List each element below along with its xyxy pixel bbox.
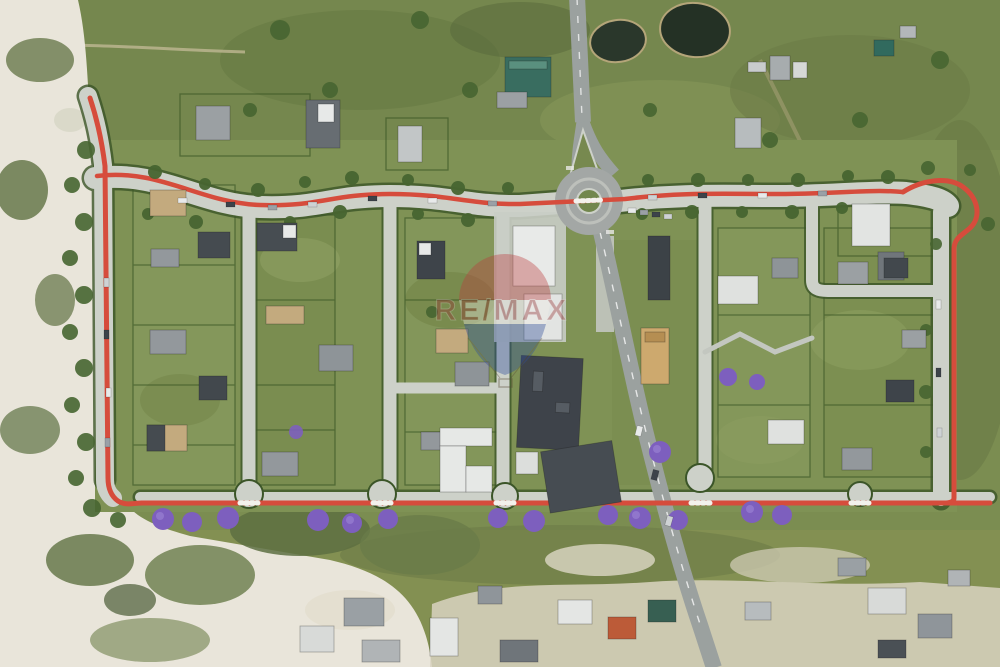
watermark-text: RE/MAX bbox=[435, 294, 570, 327]
aerial-photo: RE/MAX bbox=[0, 0, 1000, 667]
aerial-photo-scene: RE/MAX bbox=[0, 0, 1000, 667]
